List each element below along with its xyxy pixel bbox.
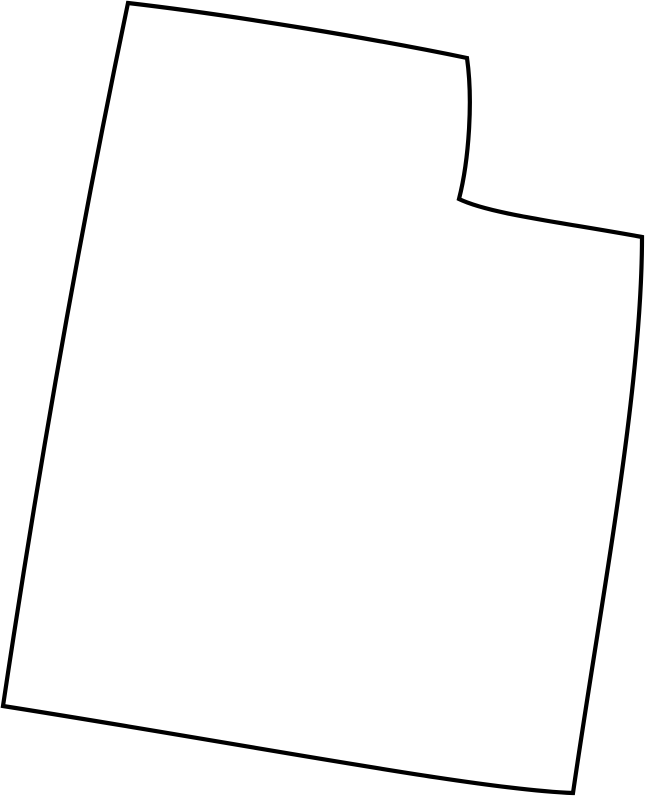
map-canvas xyxy=(0,0,649,800)
state-outline-path xyxy=(3,3,642,793)
state-outline-map xyxy=(0,0,649,800)
